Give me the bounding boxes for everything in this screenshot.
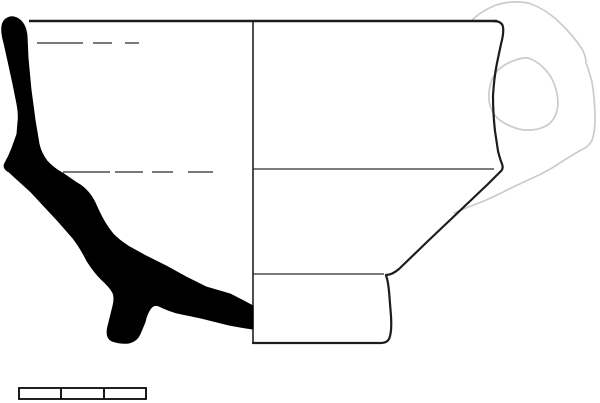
- handle-outline: [454, 2, 595, 213]
- scale-bar: [19, 388, 146, 399]
- vessel-profile-figure: [0, 0, 600, 403]
- handle-opening-outline: [489, 58, 558, 130]
- vessel-section-profile: [2, 17, 253, 343]
- vessel-wall-outline: [253, 21, 503, 343]
- drawing-canvas: [0, 0, 600, 403]
